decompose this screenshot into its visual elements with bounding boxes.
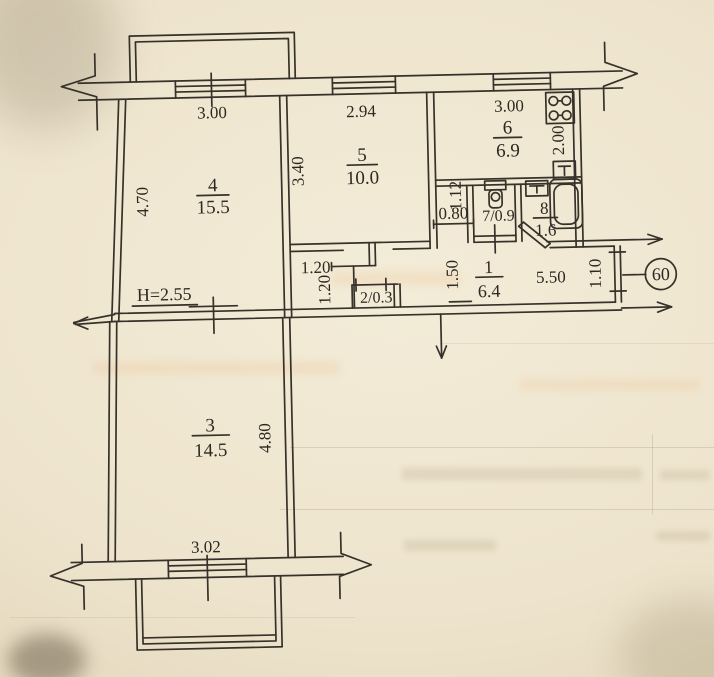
left-outer-wall xyxy=(107,99,131,321)
room2-number-area: 2/0.3 xyxy=(360,289,393,307)
unit-number-badge: 60 xyxy=(645,258,677,290)
break-mark xyxy=(603,42,639,111)
room3-area: 14.5 xyxy=(194,440,228,462)
stove-icon xyxy=(546,92,575,124)
dim-closet-w: 1.20 xyxy=(300,258,330,278)
ceiling-height: H=2.55 xyxy=(137,284,192,305)
room6-label: 6 6.9 xyxy=(493,117,522,162)
room1-number: 1 xyxy=(484,257,493,277)
balcony-bottom xyxy=(136,576,283,650)
dim-hall-length: 5.50 xyxy=(536,267,566,287)
floor-plan-scan: 60 xyxy=(0,0,714,677)
entrance-door xyxy=(609,245,646,302)
room4-number: 4 xyxy=(208,175,218,196)
dim-window-kitchen: 3.00 xyxy=(494,96,524,116)
room3-label: 3 14.5 xyxy=(192,415,230,462)
bath-bottom-wall xyxy=(547,241,583,248)
dim-closet-h: 1.20 xyxy=(315,275,335,305)
room5-label: 5 10.0 xyxy=(345,144,379,189)
room4-label: 4 15.5 xyxy=(196,175,230,219)
window-room5 xyxy=(332,76,395,94)
wall-room4-room5 xyxy=(280,96,292,318)
dim-nook-width: 0.80 xyxy=(438,203,468,223)
unit-circle-leader xyxy=(623,274,646,275)
window-kitchen xyxy=(493,73,550,91)
wc-bottom-wall xyxy=(474,224,517,253)
wall-wc-bath xyxy=(515,184,522,241)
room6-number: 6 xyxy=(502,117,512,138)
room2-label: 2/0.3 xyxy=(360,289,393,307)
room7-label: 7/0.9 xyxy=(482,207,515,225)
floor-plan-svg: 60 xyxy=(0,0,714,677)
plan-rotated-group: 60 xyxy=(38,24,684,652)
break-mark xyxy=(50,544,84,610)
axis-down-arrow xyxy=(441,314,442,358)
window-room4 xyxy=(175,72,246,107)
room6-area: 6.9 xyxy=(496,140,520,162)
threshold-tick xyxy=(213,297,214,333)
break-mark xyxy=(61,54,98,131)
wc-door-tick xyxy=(495,225,496,253)
room8-number: 8 xyxy=(540,199,549,218)
dim-window-room5: 2.94 xyxy=(346,102,377,122)
break-mark xyxy=(339,532,372,599)
dim-room3-window: 3.02 xyxy=(191,537,221,557)
unit-number: 60 xyxy=(652,264,670,284)
hall-top-right-wall xyxy=(583,234,662,247)
dim-left-wall: 4.70 xyxy=(133,187,153,217)
room5-number: 5 xyxy=(357,145,367,166)
room1-label: 1 6.4 xyxy=(475,257,503,302)
room3-number: 3 xyxy=(205,415,215,436)
room1-area: 6.4 xyxy=(478,281,501,302)
room7-number-area: 7/0.9 xyxy=(482,207,515,225)
dim-window-room4: 3.00 xyxy=(197,103,227,123)
dim-hall-left: 1.50 xyxy=(442,260,462,290)
room4-area: 15.5 xyxy=(196,197,230,219)
ceiling-height-label: H=2.55 xyxy=(132,284,197,306)
balcony-top xyxy=(129,32,295,82)
room8-area: 1.6 xyxy=(535,220,557,239)
dim-room3-depth: 4.80 xyxy=(255,423,275,453)
dim-kitchen-depth: 2.00 xyxy=(548,125,568,155)
room5-area: 10.0 xyxy=(346,167,380,189)
dim-entry-width: 1.10 xyxy=(585,258,605,288)
dim-room5-depth: 3.40 xyxy=(288,156,308,186)
